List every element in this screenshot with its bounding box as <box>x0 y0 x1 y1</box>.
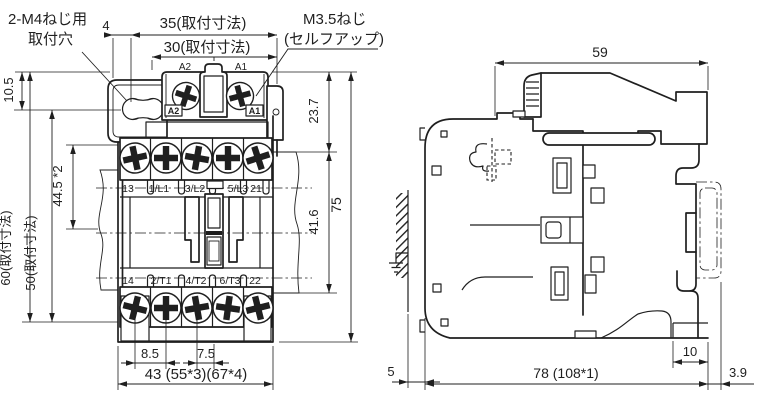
dim-78: 78 (108*1) <box>533 365 598 381</box>
dim-43: 43 (55*3)(67*4) <box>145 366 248 383</box>
terminal-label-13: 13 <box>122 183 134 195</box>
note-m4-line2: 取付穴 <box>28 31 73 48</box>
note-m4-leader <box>82 52 127 101</box>
din-rail-mount <box>676 144 721 338</box>
terminal-label-22: 22 <box>249 275 261 287</box>
terminal-label-2t1: 2/T1 <box>150 275 171 287</box>
terminal-bar <box>543 133 655 145</box>
terminal-tag <box>207 181 223 189</box>
contactor-outline-drawing: A2 A1 A2 A1 <box>0 0 765 405</box>
dim-3-9: 3.9 <box>729 365 747 380</box>
dim-4: 4 <box>102 18 109 33</box>
dim-23-7: 23.7 <box>306 98 321 123</box>
dim-59: 59 <box>592 44 608 60</box>
note-m35-line2: (セルフアップ) <box>284 31 384 48</box>
dim-41-6: 41.6 <box>306 209 321 234</box>
dim-75: 75 <box>328 197 344 213</box>
din-rail-inner <box>700 188 717 270</box>
contact-window <box>185 194 243 268</box>
screw-slot-detail <box>470 138 511 182</box>
side-view: 59 10 78 (108*1) 3.9 5 <box>387 44 754 390</box>
coil-label-a2: A2 <box>179 62 192 73</box>
coil-boxed-label-a1: A1 <box>249 106 261 116</box>
centerlines <box>96 188 312 278</box>
dim-8-5: 8.5 <box>141 346 159 361</box>
keyhole-slot <box>123 99 164 120</box>
dim-10: 10 <box>683 344 697 359</box>
side-terminal-block <box>513 73 707 145</box>
note-m4-line1: 2-M4ねじ用 <box>8 11 87 28</box>
note-m35-line1: M3.5ねじ <box>303 11 366 28</box>
dim-30: 30(取付寸法) <box>164 39 251 56</box>
front-view: A2 A1 A2 A1 <box>0 11 384 390</box>
dim-50: 50(取付寸法) <box>23 215 38 290</box>
wire-clamp <box>524 73 541 117</box>
wall-hatching <box>396 193 408 278</box>
side-body <box>420 113 708 338</box>
coil-boxed-label-a2: A2 <box>168 106 180 116</box>
coil-terminal-block: A2 A1 A2 A1 <box>162 57 283 140</box>
dim-5: 5 <box>387 364 394 379</box>
dim-7-5: 7.5 <box>197 346 215 361</box>
terminal-label-1l1: 1/L1 <box>149 183 170 195</box>
right-mounting-lug <box>267 86 283 140</box>
rail-stop-tab <box>686 213 696 252</box>
dim-60: 60(取付寸法) <box>0 210 13 285</box>
dim-35: 35(取付寸法) <box>160 15 247 32</box>
terminal-label-6t3: 6/T3 <box>219 275 240 287</box>
terminal-label-3l2: 3/L2 <box>185 183 206 195</box>
terminal-label-14: 14 <box>122 275 134 287</box>
coil-label-a1: A1 <box>235 62 248 73</box>
dim-10-5: 10.5 <box>1 77 16 102</box>
terminal-label-21: 21 <box>250 183 262 195</box>
dim-44-5: 44.5 *2 <box>50 165 65 206</box>
terminal-label-5l3: 5/L3 <box>228 183 249 195</box>
technical-drawing-page: A2 A1 A2 A1 <box>0 0 765 405</box>
mounting-wall <box>389 190 408 312</box>
terminal-label-4t2: 4/T2 <box>185 275 206 287</box>
